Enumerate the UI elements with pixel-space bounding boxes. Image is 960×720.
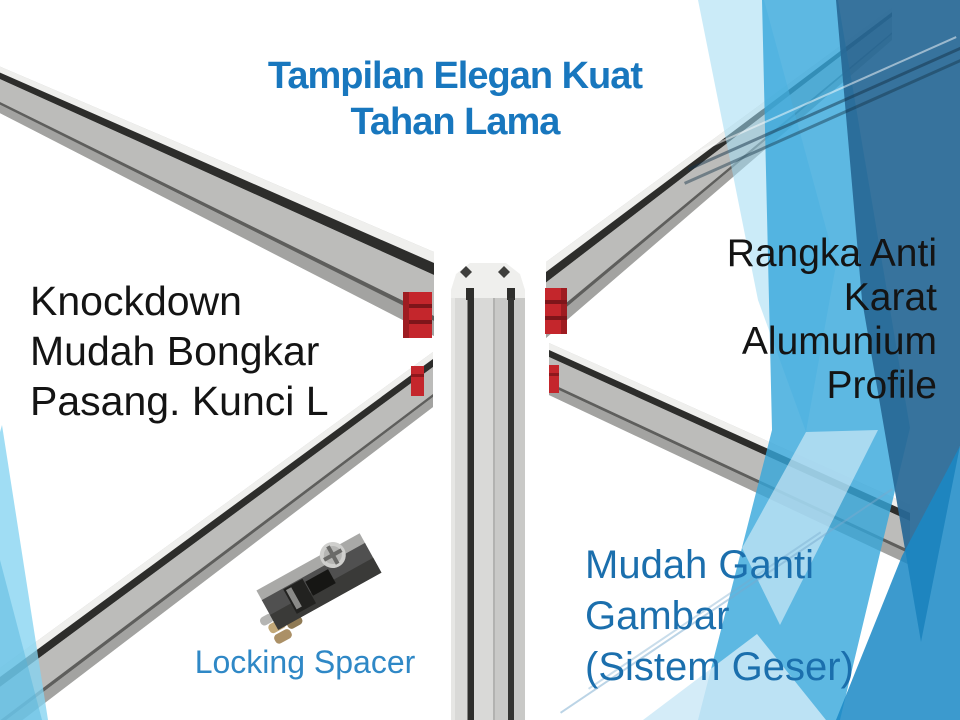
caption-knockdown: Knockdown Mudah Bongkar Pasang. Kunci L: [30, 276, 430, 426]
caption-rangka-line-1: Rangka Anti: [655, 232, 937, 276]
slide-title: Tampilan Elegan Kuat Tahan Lama: [140, 54, 770, 145]
clip-top-right: [545, 288, 567, 334]
caption-rangka-line-2: Karat: [655, 276, 937, 320]
caption-mudah-ganti-line-3: (Sistem Geser): [585, 642, 945, 693]
clip-bottom-right: [549, 365, 559, 393]
caption-knockdown-line-3: Pasang. Kunci L: [30, 376, 430, 426]
locking-spacer-label: Locking Spacer: [180, 644, 430, 681]
caption-mudah-ganti-line-2: Gambar: [585, 591, 945, 642]
slide-title-line-2: Tahan Lama: [140, 100, 770, 146]
caption-mudah-ganti: Mudah Ganti Gambar (Sistem Geser): [585, 540, 945, 694]
caption-mudah-ganti-line-1: Mudah Ganti: [585, 540, 945, 591]
locking-spacer-photo: [243, 527, 388, 647]
caption-knockdown-line-2: Mudah Bongkar: [30, 326, 430, 376]
caption-knockdown-line-1: Knockdown: [30, 276, 430, 326]
presentation-slide: Tampilan Elegan Kuat Tahan Lama Knockdow…: [0, 0, 960, 720]
caption-rangka-line-4: Profile: [655, 364, 937, 408]
caption-rangka: Rangka Anti Karat Alumunium Profile: [655, 232, 937, 408]
slide-title-line-1: Tampilan Elegan Kuat: [140, 54, 770, 100]
centre-post-photo: [451, 263, 525, 720]
caption-rangka-line-3: Alumunium: [655, 320, 937, 364]
